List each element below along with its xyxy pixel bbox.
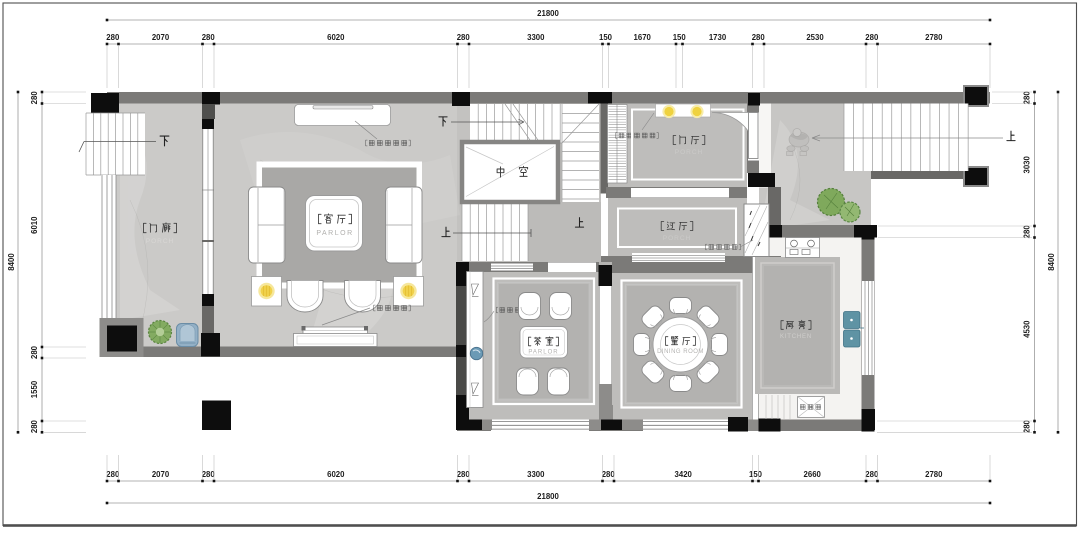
svg-text:280: 280: [30, 345, 39, 359]
svg-text:3420: 3420: [675, 470, 693, 479]
svg-text:150: 150: [749, 470, 763, 479]
svg-text:6020: 6020: [327, 470, 345, 479]
svg-text:280: 280: [865, 470, 879, 479]
svg-text:6010: 6010: [30, 216, 39, 234]
svg-text:280: 280: [602, 470, 616, 479]
svg-text:280: 280: [202, 470, 216, 479]
svg-text:280: 280: [457, 470, 471, 479]
svg-text:280: 280: [1023, 225, 1032, 239]
svg-text:4530: 4530: [1023, 320, 1032, 338]
svg-text:PORCH: PORCH: [146, 238, 174, 245]
svg-text:1550: 1550: [30, 380, 39, 398]
svg-text:DINING ROOM: DINING ROOM: [657, 349, 704, 355]
svg-text:KITCHEN: KITCHEN: [780, 334, 812, 340]
svg-text:280: 280: [1023, 91, 1032, 105]
svg-text:280: 280: [106, 33, 120, 42]
svg-text:21800: 21800: [537, 9, 559, 18]
svg-text:150: 150: [673, 33, 687, 42]
svg-text:2780: 2780: [925, 470, 943, 479]
svg-text:2780: 2780: [925, 33, 943, 42]
svg-text:150: 150: [599, 33, 613, 42]
svg-text:280: 280: [865, 33, 879, 42]
svg-text:6020: 6020: [327, 33, 345, 42]
svg-text:280: 280: [106, 470, 120, 479]
svg-text:21800: 21800: [537, 492, 559, 501]
svg-text:PORCH: PORCH: [663, 235, 691, 242]
svg-text:8400: 8400: [7, 253, 16, 271]
svg-text:3300: 3300: [527, 470, 545, 479]
svg-text:280: 280: [752, 33, 766, 42]
svg-text:PARLOR: PARLOR: [316, 230, 353, 237]
svg-text:8400: 8400: [1047, 253, 1056, 271]
svg-text:PORCH: PORCH: [675, 149, 703, 156]
svg-text:1730: 1730: [709, 33, 727, 42]
svg-text:280: 280: [202, 33, 216, 42]
svg-text:3300: 3300: [527, 33, 545, 42]
svg-text:280: 280: [30, 91, 39, 105]
svg-text:1670: 1670: [634, 33, 652, 42]
svg-text:2660: 2660: [804, 470, 822, 479]
svg-text:280: 280: [457, 33, 471, 42]
svg-text:2530: 2530: [806, 33, 824, 42]
svg-text:280: 280: [30, 419, 39, 433]
svg-text:3030: 3030: [1023, 155, 1032, 173]
svg-text:PARLOR: PARLOR: [528, 350, 558, 356]
svg-text:280: 280: [1023, 419, 1032, 433]
svg-text:2070: 2070: [152, 33, 170, 42]
svg-text:2070: 2070: [152, 470, 170, 479]
